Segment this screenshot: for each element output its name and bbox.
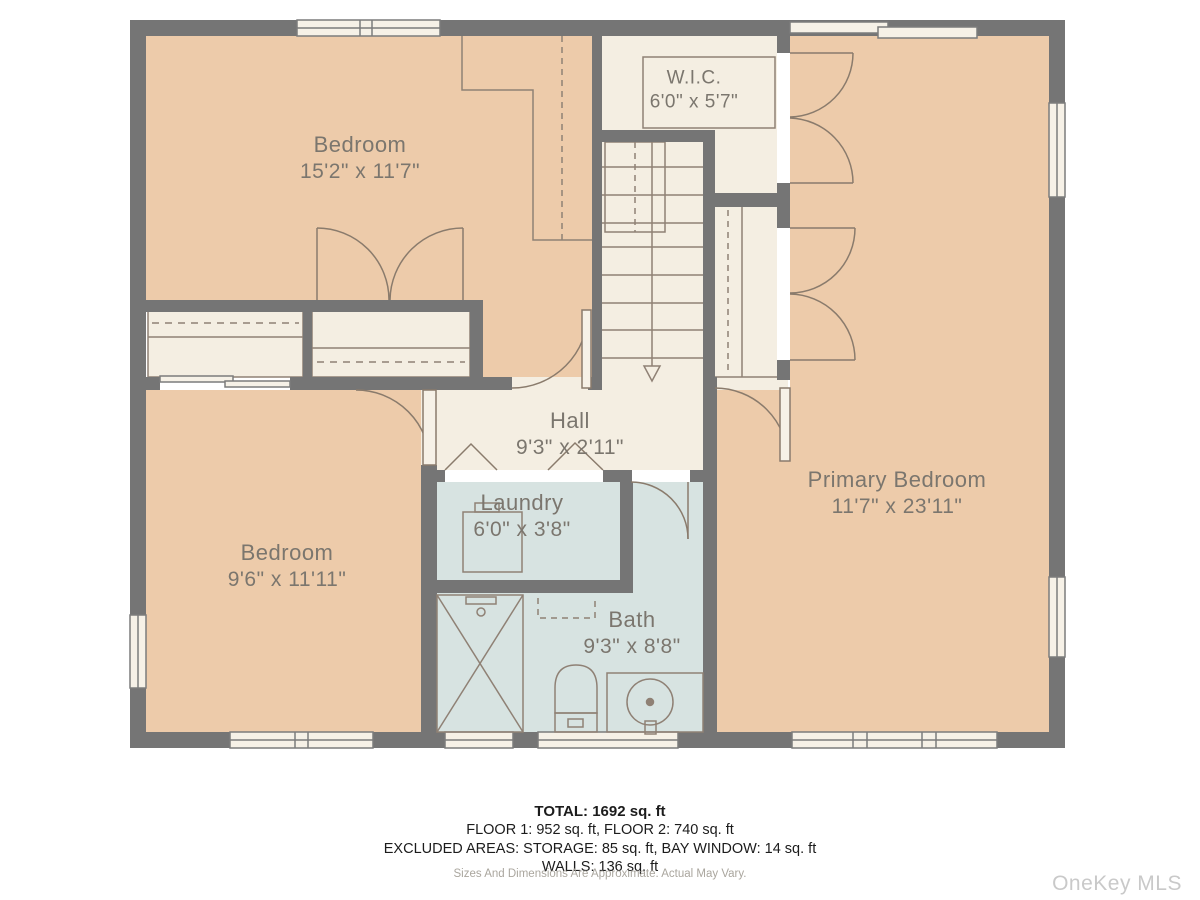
excluded-areas-text: EXCLUDED AREAS: STORAGE: 85 sq. ft, BAY … xyxy=(0,840,1200,859)
window xyxy=(297,20,440,36)
room-name: Laundry xyxy=(473,489,570,517)
wall xyxy=(703,377,717,732)
window xyxy=(445,732,513,748)
room-label-bath: Bath 9'3" x 8'8" xyxy=(583,606,680,660)
wall xyxy=(777,183,790,228)
room-label-hall: Hall 9'3" x 2'11" xyxy=(516,407,624,461)
room-dimensions: 6'0" x 5'7" xyxy=(650,90,739,114)
room-label-wic: W.I.C. 6'0" x 5'7" xyxy=(650,66,739,114)
wall xyxy=(470,302,483,390)
closet-nook-floor xyxy=(715,207,777,377)
room-label-bedroom-bottom: Bedroom 9'6" x 11'11" xyxy=(228,539,347,593)
wall xyxy=(421,580,633,593)
wall xyxy=(690,470,703,482)
room-name: W.I.C. xyxy=(650,66,739,90)
door-leaf xyxy=(582,310,591,388)
area-summary: TOTAL: 1692 sq. ft FLOOR 1: 952 sq. ft, … xyxy=(0,802,1200,877)
door-leaf xyxy=(780,388,790,461)
total-area-text: TOTAL: 1692 sq. ft xyxy=(0,802,1200,821)
window xyxy=(130,615,146,688)
room-label-primary-bedroom: Primary Bedroom 11'7" x 23'11" xyxy=(808,466,987,520)
wall xyxy=(592,130,715,142)
room-name: Bath xyxy=(583,606,680,634)
wall xyxy=(290,377,512,390)
left-closet-floor xyxy=(148,310,303,377)
wall xyxy=(146,300,483,312)
room-dimensions: 9'3" x 8'8" xyxy=(583,634,680,660)
floor-areas-text: FLOOR 1: 952 sq. ft, FLOOR 2: 740 sq. ft xyxy=(0,821,1200,840)
floor-plan-page: Bedroom 15'2" x 11'7" W.I.C. 6'0" x 5'7"… xyxy=(0,0,1200,900)
doorway-threshold xyxy=(512,377,588,390)
wall xyxy=(437,470,445,482)
window xyxy=(1049,577,1065,657)
watermark-text: OneKey MLS xyxy=(1052,872,1182,896)
window xyxy=(1049,103,1065,197)
room-dimensions: 9'6" x 11'11" xyxy=(228,567,347,593)
room-name: Hall xyxy=(516,407,624,435)
wall xyxy=(603,470,632,482)
room-dimensions: 6'0" x 3'8" xyxy=(473,517,570,543)
window xyxy=(230,732,373,748)
room-dimensions: 9'3" x 2'11" xyxy=(516,435,624,461)
wall xyxy=(146,377,160,390)
room-label-bedroom-top: Bedroom 15'2" x 11'7" xyxy=(300,131,420,185)
room-name: Primary Bedroom xyxy=(808,466,987,494)
wall xyxy=(715,193,777,207)
room-name: Bedroom xyxy=(300,131,420,159)
room-dimensions: 15'2" x 11'7" xyxy=(300,159,420,185)
room-name: Bedroom xyxy=(228,539,347,567)
wall xyxy=(703,130,715,377)
disclaimer-text: Sizes And Dimensions Are Approximate. Ac… xyxy=(0,868,1200,880)
wall xyxy=(777,36,790,53)
window xyxy=(792,732,997,748)
wall xyxy=(620,482,633,580)
window xyxy=(538,732,678,748)
wall xyxy=(592,36,602,390)
wic-floor-extension xyxy=(715,130,777,193)
wall xyxy=(777,360,790,380)
door-leaf xyxy=(423,390,436,465)
middle-closet-floor xyxy=(312,310,470,377)
room-dimensions: 11'7" x 23'11" xyxy=(808,494,987,520)
wall xyxy=(303,310,312,377)
wall xyxy=(421,465,437,732)
room-label-laundry: Laundry 6'0" x 3'8" xyxy=(473,489,570,543)
